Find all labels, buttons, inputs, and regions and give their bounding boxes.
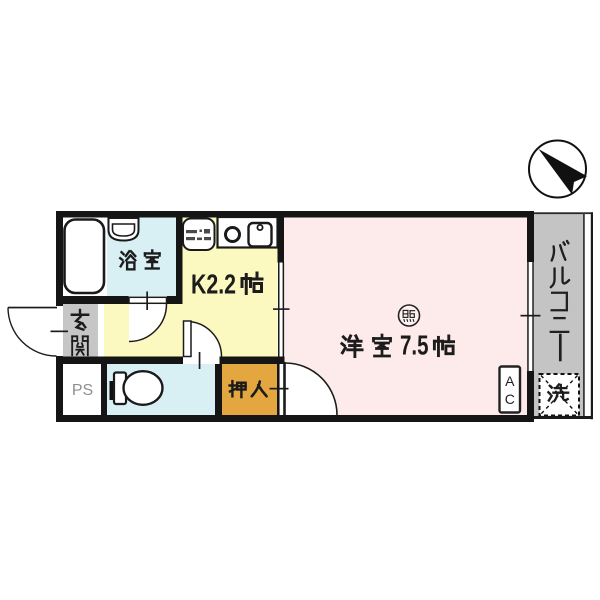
- svg-text:A: A: [505, 373, 515, 389]
- svg-text:K2.2: K2.2: [191, 269, 236, 300]
- svg-text:PS: PS: [72, 382, 93, 399]
- svg-text:7.5: 7.5: [400, 330, 429, 361]
- svg-text:C: C: [505, 391, 515, 407]
